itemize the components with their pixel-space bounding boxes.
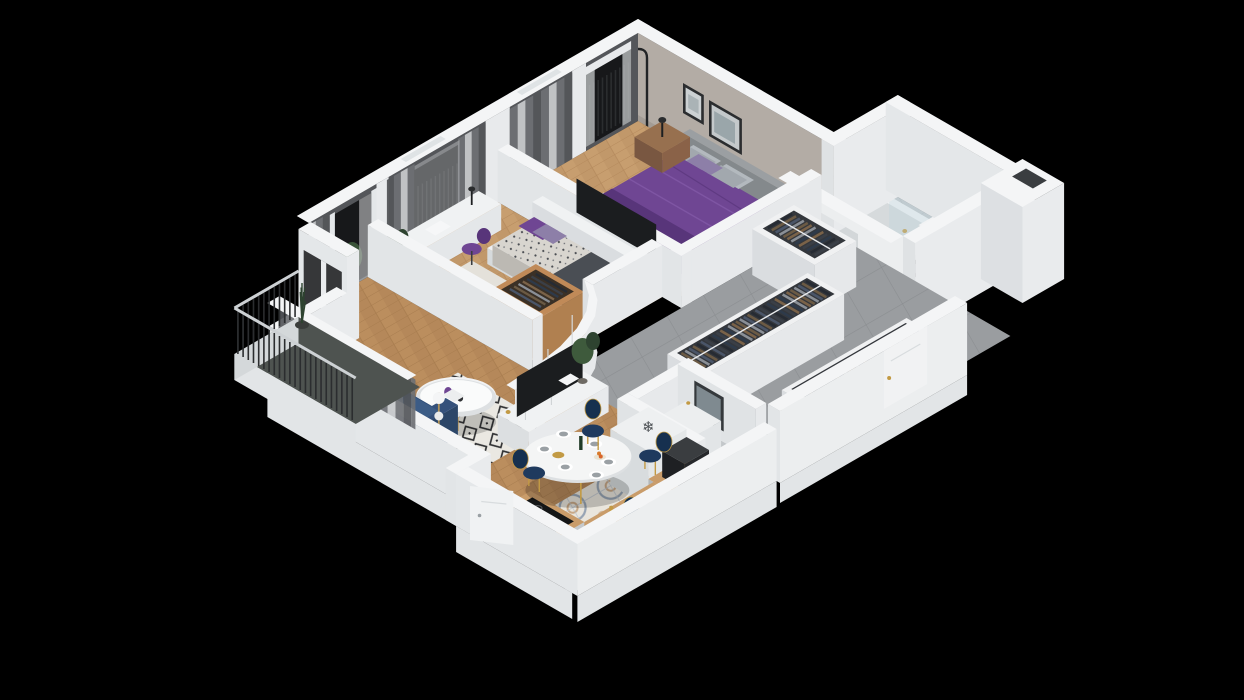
lamp-ball-1 [433, 392, 445, 404]
desk-lamp-shade [468, 187, 475, 192]
chair-back [477, 228, 491, 244]
niche-sheer [622, 43, 631, 126]
exterior-nook [981, 159, 1064, 303]
gold-bowl [552, 452, 564, 458]
snowflake-icon: ❄ [642, 418, 655, 436]
plate-inner-5 [540, 447, 549, 452]
entry-door-handle [887, 376, 891, 380]
powder-tap [686, 401, 690, 405]
kitchen-door-handle [478, 514, 482, 518]
floorplan-3d-render: ❄ [0, 0, 1244, 700]
curtain-strip [557, 78, 565, 169]
mb-south-wall-face-r [681, 250, 691, 308]
bath-wall-nw-face-l [822, 139, 834, 234]
chair-seat [523, 467, 545, 480]
chair-seat [582, 425, 604, 438]
curtain-strip [549, 82, 557, 173]
plant-foliage2 [586, 332, 600, 350]
nw-pier-1 [572, 63, 586, 159]
kitchen-door [470, 486, 513, 545]
kitchen-door-leaf [470, 486, 513, 545]
sw-facade-tall-face-r [347, 250, 359, 345]
curtain-strip [541, 87, 549, 178]
niche-sheer2 [586, 64, 595, 147]
plate-inner-3 [592, 473, 601, 478]
plate-inner-0 [559, 432, 568, 437]
kitchen-step-wall-face-l [446, 468, 456, 526]
lamp-ball-2 [434, 412, 443, 421]
fruit-2 [599, 455, 603, 459]
curtain-strip [564, 73, 572, 164]
chair-seat [639, 450, 661, 463]
plant-pot [578, 378, 588, 384]
render-stage: ❄ [0, 0, 1244, 700]
plate-inner-2 [604, 460, 613, 465]
plate-inner-4 [561, 465, 570, 470]
console-deco-gold [506, 410, 511, 414]
se-wall-south-face-l [565, 537, 577, 596]
nightstand-lamp-shade [658, 117, 666, 123]
